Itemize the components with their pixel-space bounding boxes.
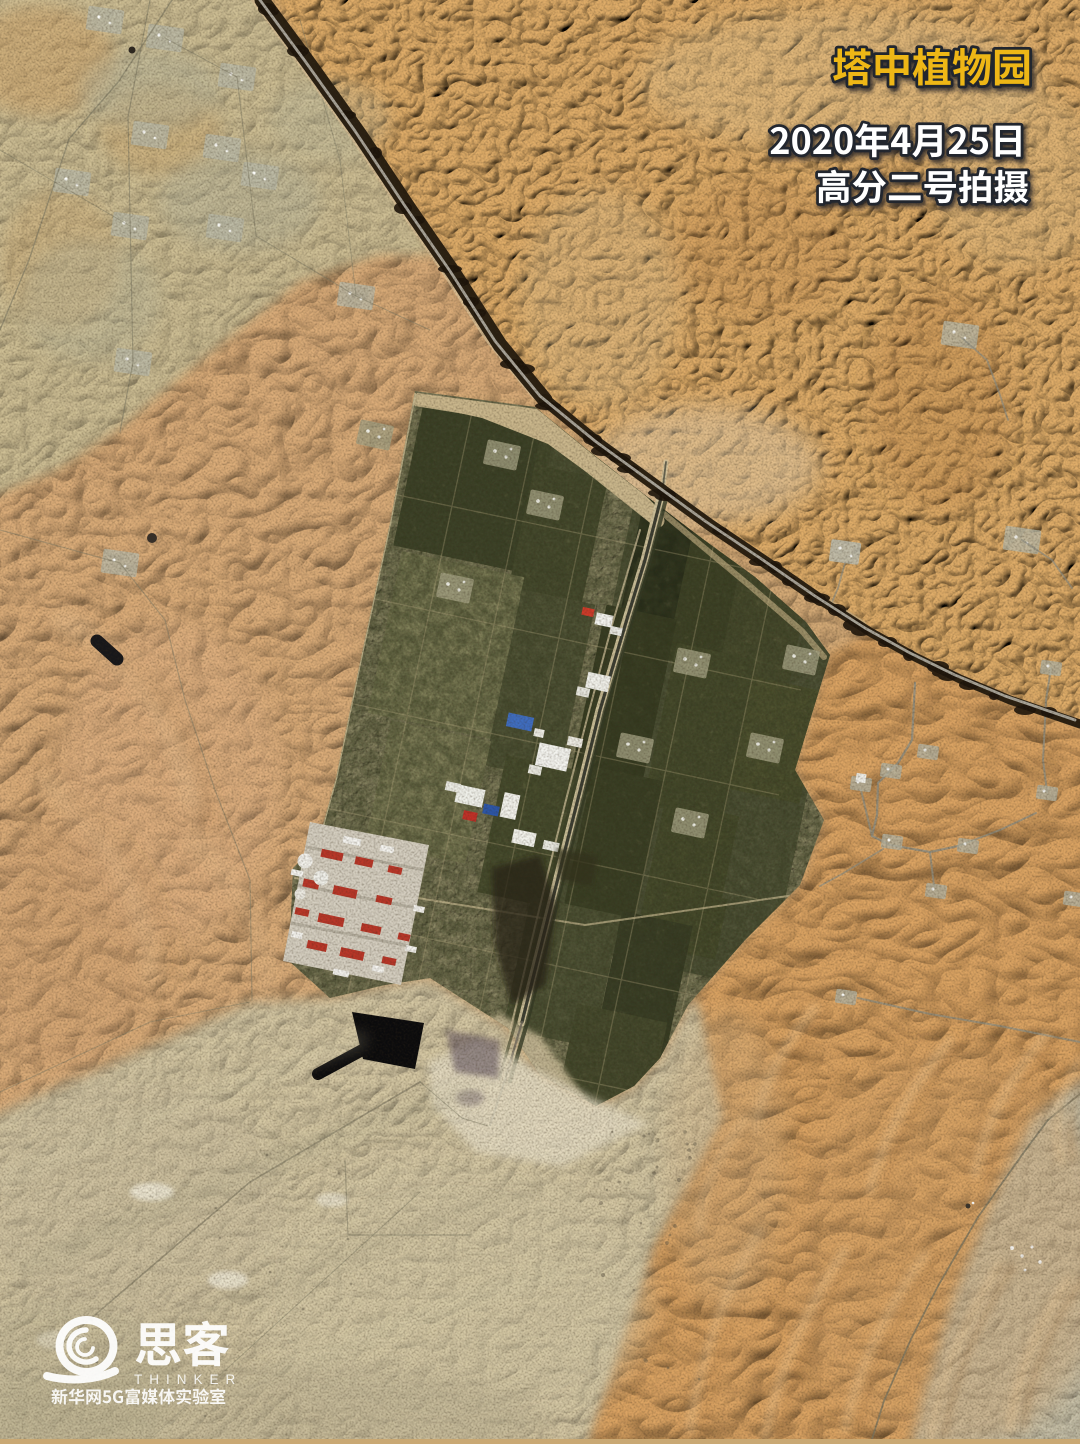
svg-text:THINKER: THINKER: [134, 1372, 242, 1387]
